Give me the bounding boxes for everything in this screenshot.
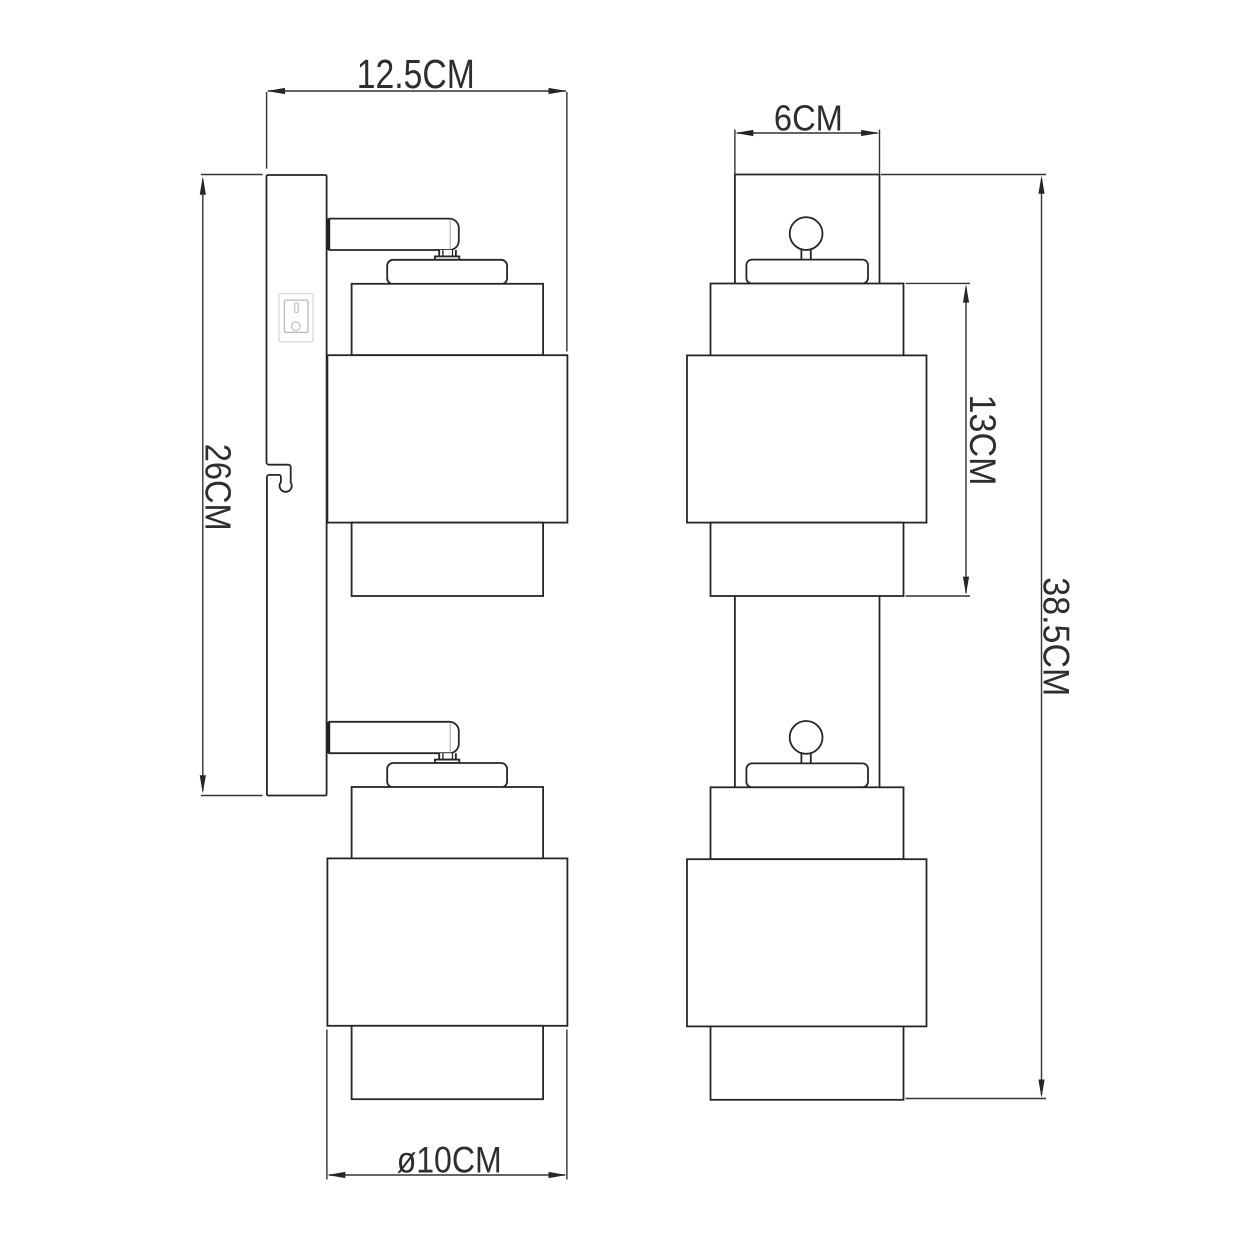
svg-text:38.5CM: 38.5CM xyxy=(1036,577,1077,696)
svg-text:12.5CM: 12.5CM xyxy=(357,51,475,97)
svg-text:ø10CM: ø10CM xyxy=(397,1140,502,1181)
svg-text:6CM: 6CM xyxy=(774,98,843,139)
svg-text:26CM: 26CM xyxy=(197,444,238,531)
svg-text:13CM: 13CM xyxy=(962,395,1003,486)
